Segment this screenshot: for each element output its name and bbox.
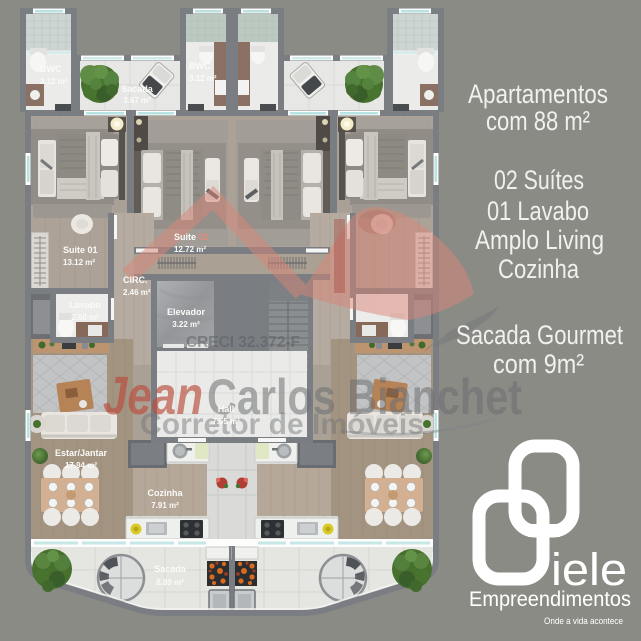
svg-text:BWC: BWC <box>189 61 211 71</box>
svg-text:3.67 m²: 3.67 m² <box>123 96 151 105</box>
svg-text:13.12 m²: 13.12 m² <box>63 258 95 267</box>
svg-text:12.72 m²: 12.72 m² <box>174 245 206 254</box>
svg-text:7.55 m²: 7.55 m² <box>212 417 240 426</box>
svg-text:com 88 m²: com 88 m² <box>486 106 590 136</box>
svg-text:3.12 m²: 3.12 m² <box>189 74 217 83</box>
svg-text:Corretor de Imóveis: Corretor de Imóveis <box>140 408 424 441</box>
svg-text:Sacada: Sacada <box>154 564 187 574</box>
svg-text:BWC: BWC <box>40 64 62 74</box>
svg-text:Apartamentos: Apartamentos <box>468 79 608 109</box>
svg-text:17.94 m²: 17.94 m² <box>65 461 97 470</box>
svg-text:Empreendimentos: Empreendimentos <box>469 587 631 611</box>
svg-text:Suite 01: Suite 01 <box>63 245 98 255</box>
svg-text:com 9m²: com 9m² <box>493 349 584 379</box>
svg-text:Amplo Living: Amplo Living <box>475 225 604 255</box>
svg-text:CIRC.: CIRC. <box>123 275 148 285</box>
svg-text:02 Suítes: 02 Suítes <box>494 165 584 195</box>
svg-text:Hall: Hall <box>218 404 235 414</box>
svg-text:Suite 02: Suite 02 <box>174 232 209 242</box>
svg-text:2.00 m²: 2.00 m² <box>71 313 99 322</box>
svg-text:3.12 m²: 3.12 m² <box>40 77 68 86</box>
svg-text:01 Lavabo: 01 Lavabo <box>487 196 589 226</box>
svg-text:8.89 m²: 8.89 m² <box>156 578 184 587</box>
svg-text:Cozinha: Cozinha <box>148 488 184 498</box>
svg-text:CRECI 32.372-F: CRECI 32.372-F <box>186 334 300 351</box>
svg-text:Sacada: Sacada <box>121 84 154 94</box>
svg-text:Sacada Gourmet: Sacada Gourmet <box>456 320 623 350</box>
svg-text:3.22 m²: 3.22 m² <box>172 320 200 329</box>
svg-text:Onde a vida acontece: Onde a vida acontece <box>544 616 623 626</box>
svg-text:Estar/Jantar: Estar/Jantar <box>55 448 108 458</box>
svg-text:Cozinha: Cozinha <box>498 254 580 284</box>
svg-text:2.46 m²: 2.46 m² <box>123 288 151 297</box>
svg-text:Elevador: Elevador <box>167 307 206 317</box>
svg-text:Lavabo: Lavabo <box>69 300 101 310</box>
svg-text:7.91 m²: 7.91 m² <box>151 501 179 510</box>
